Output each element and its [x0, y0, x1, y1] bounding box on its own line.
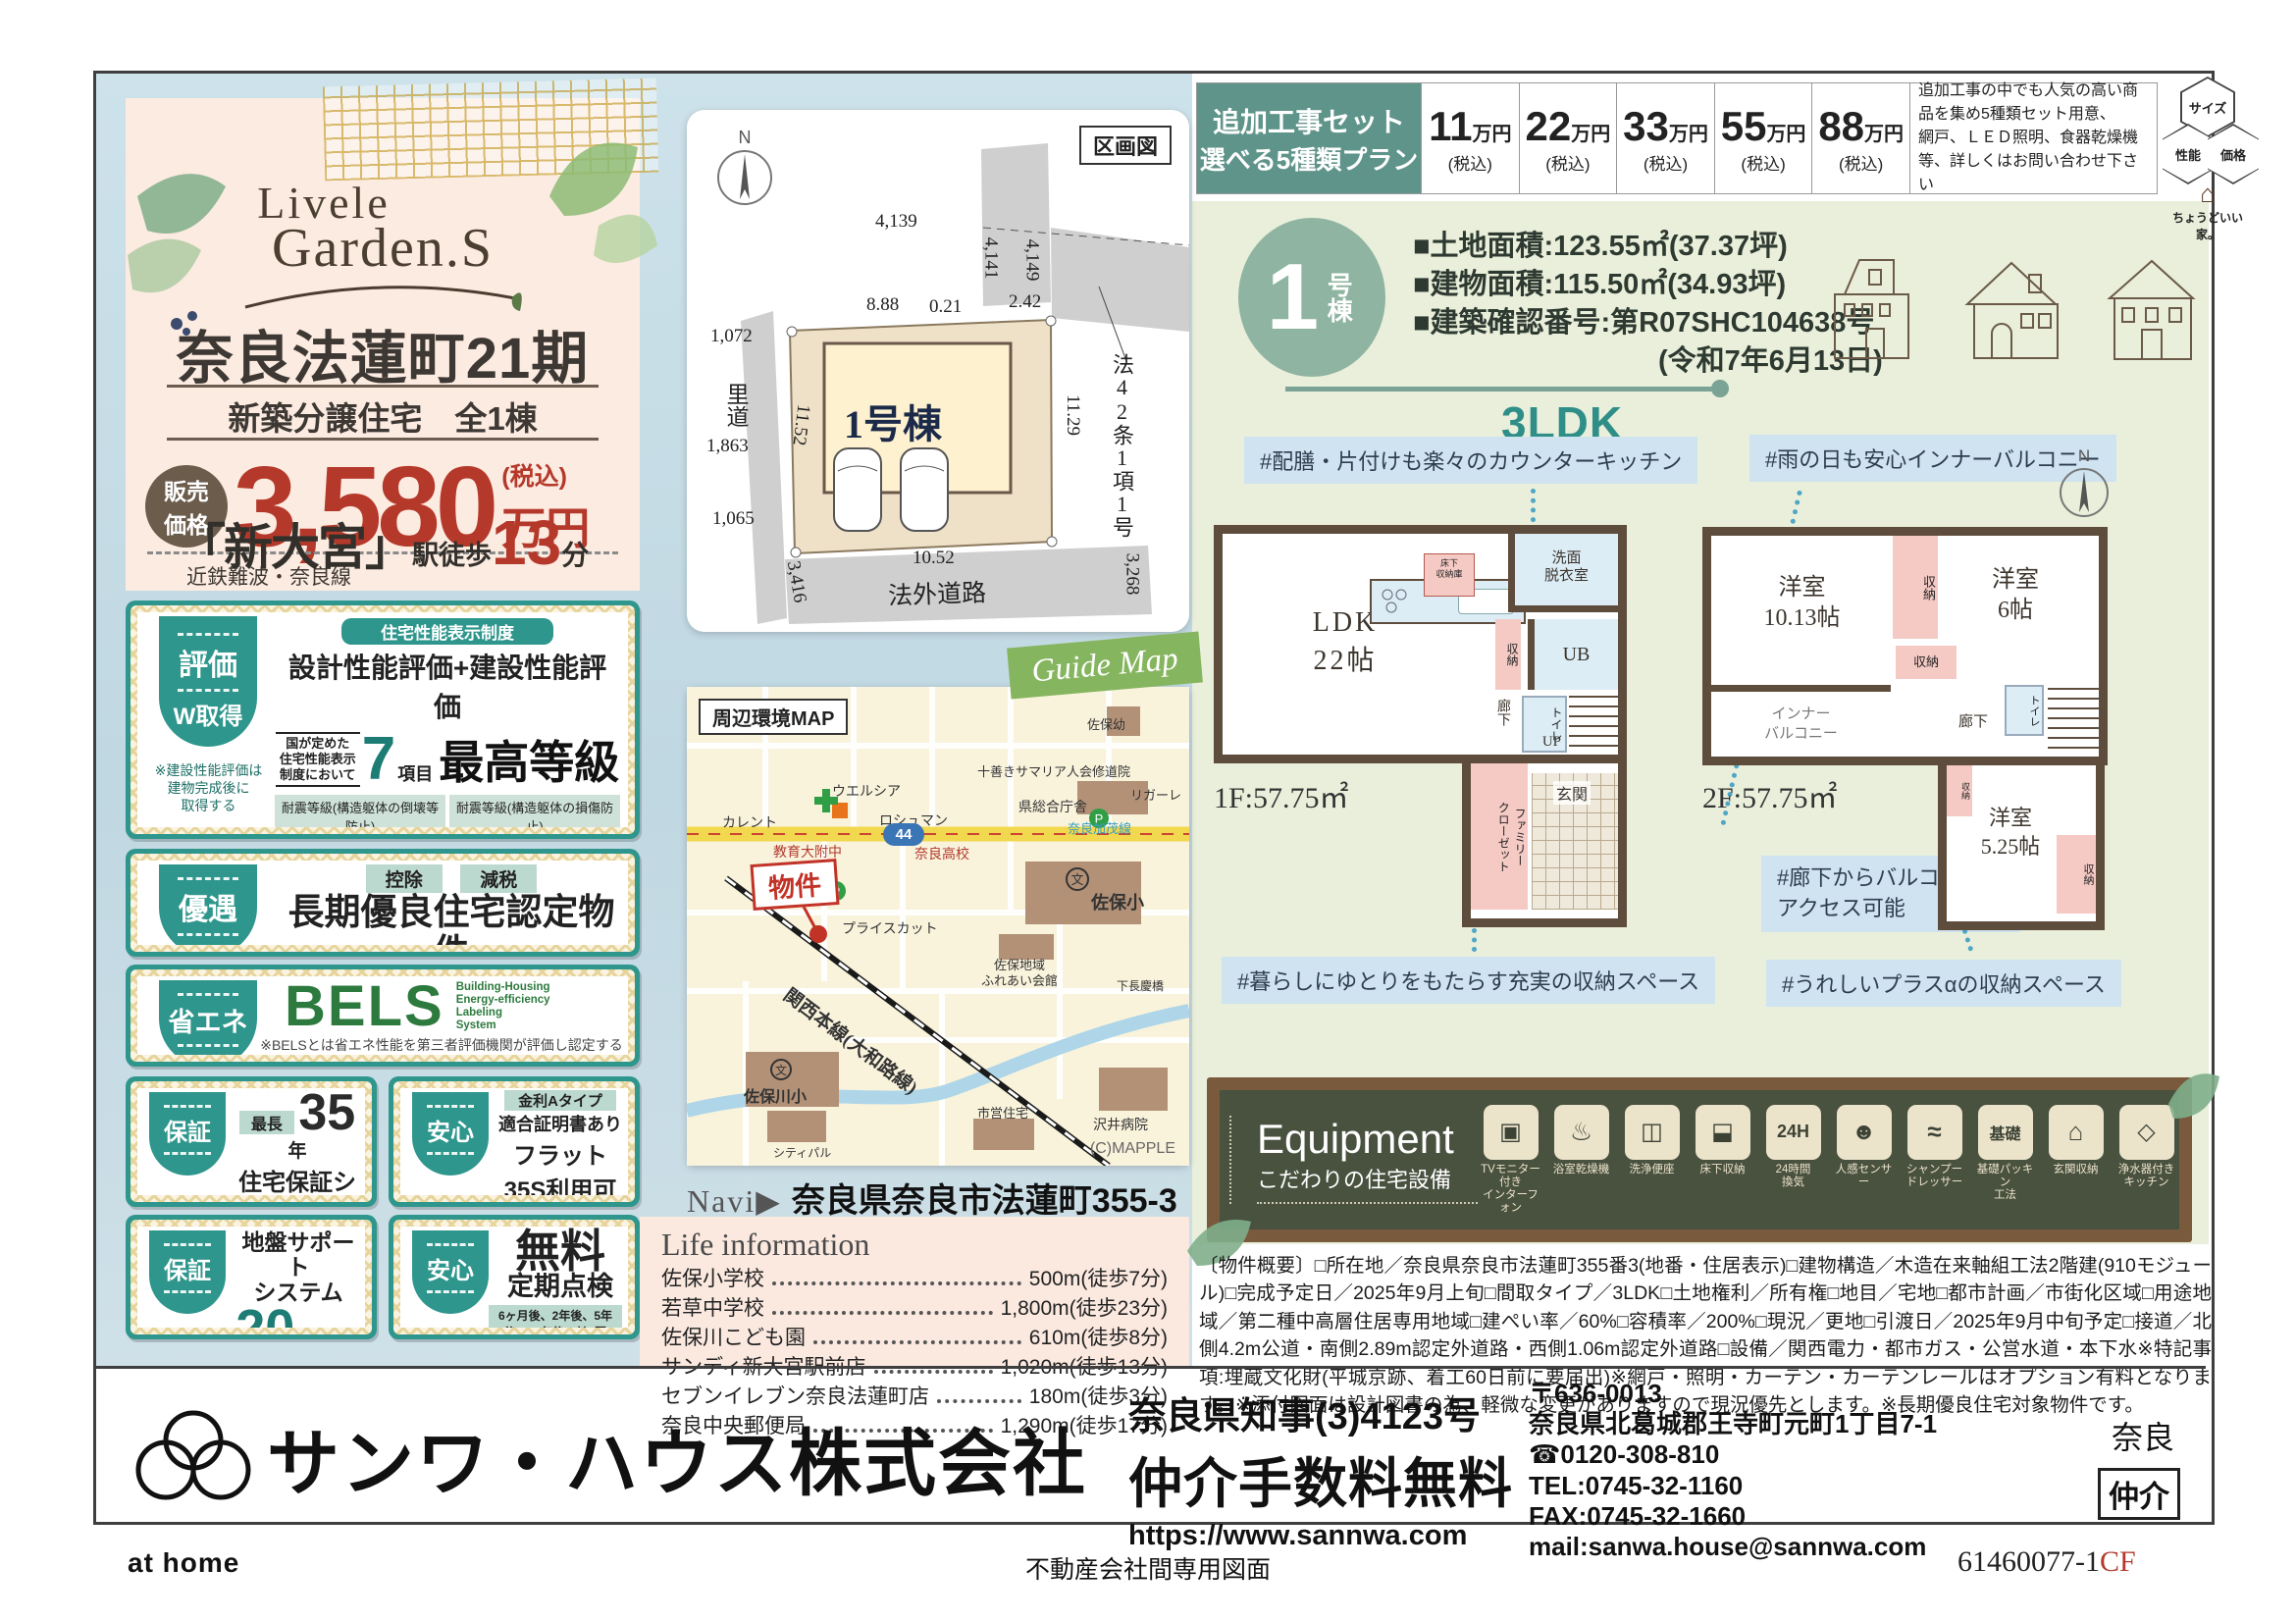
equipment-label: シャンプー ドレッサー	[1902, 1164, 1967, 1189]
walk-label: 駅徒歩	[412, 534, 492, 572]
leaf-decoration-equipment-right	[2159, 1055, 2227, 1133]
badge-jiban-big: 20	[235, 1299, 294, 1328]
extra-work-label-line1: 追加工事セット	[1197, 101, 1421, 140]
dim-1065: 1,065	[712, 508, 755, 530]
badge-hosho35-tab: 保証	[149, 1113, 226, 1147]
divider	[167, 385, 599, 388]
badge-hosho35-chip: 最長	[239, 1111, 294, 1134]
toilet-2f: トイレ	[2005, 685, 2044, 736]
badge-hosho35-unit: 年	[287, 1141, 306, 1162]
inner-balcony: インナー バルコニー	[1711, 685, 1891, 757]
callout-kitchen: #配膳・片付けも楽々のカウンターキッチン	[1244, 437, 1697, 484]
shampoo-dresser-icon: ≈	[1907, 1105, 1962, 1160]
glyph: ♨	[1570, 1117, 1592, 1147]
dim-1129: 11.29	[1062, 394, 1083, 436]
dim-4141: 4,141	[979, 237, 1001, 280]
walk-min-unit: 分	[561, 534, 589, 573]
equipment-label: TVモニター付き インターフォン	[1478, 1164, 1543, 1216]
glyph: 基礎	[1989, 1121, 2020, 1144]
landmark: 佐保川小	[744, 1083, 807, 1107]
equipment-label: 浄水器付き キッチン	[2113, 1164, 2179, 1189]
life-value: 610m(徒歩8分)	[1029, 1322, 1168, 1351]
badge-hyoka-tab: 評価	[159, 641, 257, 684]
plot-unit-label: 1号棟	[844, 392, 942, 449]
guide-map-card: P P 文 文 周辺環境MAP 物件 カレント ウエルシア ロシュマン 教育大附…	[687, 687, 1189, 1166]
life-name: 若草中学校	[661, 1292, 764, 1322]
callout-storage-1f: #暮らしにゆとりをもたらす充実の収納スペース	[1222, 957, 1715, 1004]
price-badge-line1: 販売	[164, 473, 209, 506]
life-row: 若草中学校1,800m(徒歩23分)	[661, 1292, 1168, 1322]
property-subtitle: 新築分譲住宅 全1棟	[137, 392, 628, 440]
corner-point	[1046, 316, 1056, 326]
footer-center-label: 不動産会社間専用図面	[1025, 1550, 1271, 1586]
corridor-2f: 廊下	[1958, 710, 1988, 731]
price-amount: 22	[1526, 103, 1572, 149]
landmark: 沢井病院	[1093, 1115, 1148, 1134]
bath-dryer-icon: ♨	[1554, 1105, 1609, 1160]
property-title: 奈良法蓮町21期	[137, 312, 628, 394]
badge-hosho35-main: 住宅保証システム	[230, 1163, 365, 1195]
equipment-items: ▣ TVモニター付き インターフォン ♨ 浴室乾燥機 ◫ 洗浄便座 ⬓ 床下収納…	[1478, 1105, 2179, 1216]
landmark: リガーレ	[1130, 785, 1181, 804]
price-tax: (税込)	[1545, 150, 1590, 175]
compass-north-label: N	[710, 128, 779, 148]
equipment-item: 24H 24時間 換気	[1760, 1105, 1826, 1216]
extra-work-note: 追加工事の中でも人気の高い商品を集め5種類セット用意、 網戸、ＬＥＤ照明、食器乾…	[1909, 83, 2157, 193]
station-label: 「新大宮」	[177, 508, 412, 579]
company-contact-block: 〒636-0013 奈良県北葛城郡王寺町元町1丁目7-1 ☎0120-308-8…	[1529, 1379, 1937, 1562]
price-cell: 88万円 (税込)	[1811, 83, 1909, 193]
badge-hyoka-head: 住宅性能表示制度	[341, 618, 553, 645]
badge-flat35-sub: 適合証明書あり	[493, 1111, 628, 1136]
badge-hyoka-small: 国が定めた 住宅性能表示 制度において	[276, 732, 360, 788]
storage-1f: 収納	[1495, 619, 1521, 690]
rido-label: 里道	[718, 383, 752, 428]
map-credit: (C)MAPPLE	[1090, 1140, 1175, 1158]
price-tax: (税込)	[1741, 150, 1785, 175]
landmark: 奈良高校	[914, 844, 969, 863]
seven-eleven-icon	[832, 803, 848, 818]
unit-spec-confirmation: ■建築確認番号:第R07SHC104638号	[1413, 304, 1883, 342]
badge-yugu-chip2: 減税	[460, 864, 537, 893]
company-branch: 奈良	[2112, 1413, 2174, 1458]
life-value: 1,800m(徒歩23分)	[1001, 1292, 1168, 1322]
badge-flat35-tab: 安心	[412, 1113, 489, 1147]
company-postal: 〒636-0013	[1529, 1379, 1937, 1409]
badge-yugu-main: 長期優良住宅認定物件	[275, 893, 628, 945]
floorplan-2f-room525: 洋室 5.25帖 収納 収納	[1938, 765, 2105, 930]
company-fee: 仲介手数料無料	[1128, 1439, 1513, 1518]
dim-4139: 4,139	[875, 211, 917, 233]
life-row: 佐保小学校500m(徒歩7分)	[661, 1263, 1168, 1292]
badge-hosho35-big: 35	[298, 1088, 355, 1141]
landmark: シティパル	[773, 1144, 831, 1161]
price-unit: 万円	[1766, 124, 1805, 145]
stairs-2f	[2048, 685, 2099, 757]
school-mark: 文	[775, 1063, 787, 1077]
room-ub: UB	[1528, 619, 1618, 690]
corridor-1f: 廊下	[1492, 699, 1512, 726]
washlet-icon: ◫	[1625, 1105, 1680, 1160]
badge-jiban-tab: 保証	[149, 1251, 226, 1285]
route-name: 奈良加茂線	[1068, 818, 1131, 837]
unit-suffix: 号棟	[1321, 272, 1357, 323]
equipment-label: 浴室乾燥機	[1548, 1164, 1614, 1176]
landmark: 佐保幼	[1087, 714, 1125, 733]
bels-logo: BELS	[285, 978, 444, 1035]
dim-3268: 3,268	[1121, 553, 1142, 596]
equipment-label: 床下収納	[1690, 1164, 1755, 1176]
unit-underline-dot	[1711, 380, 1729, 397]
bels-subtitle: Building-Housing Energy-efficiency Label…	[456, 981, 550, 1033]
price-cell: 11万円 (税込)	[1421, 83, 1519, 193]
walk-minutes: 13	[492, 511, 561, 574]
badge-tenken-tab: 安心	[412, 1251, 489, 1285]
landmark: ウエルシア	[832, 781, 901, 801]
equipment-label: 基礎パッキン 工法	[1972, 1164, 2038, 1203]
badge-shoene-tab: 省エネ	[159, 1001, 257, 1039]
divider	[167, 438, 599, 441]
badge-flat35-main: フラット35S利用可	[493, 1136, 628, 1195]
price-amount: 33	[1623, 103, 1669, 149]
equipment-label: 洗浄便座	[1619, 1164, 1685, 1176]
genkan-area: 玄関	[1532, 773, 1618, 910]
badge-hosho35: 保証 最長 35 年 住宅保証システム ※お引渡しから5年以降、5年ごとに 有償…	[126, 1076, 377, 1207]
life-name: 佐保小学校	[661, 1263, 764, 1292]
badge-flat35: 安心 金利Aタイプ 適合証明書あり フラット35S利用可 ※一連の事務手数料とし…	[389, 1076, 640, 1207]
storage-2f-d: 収納	[1947, 765, 1972, 816]
entrance-storage-icon: ⌂	[2049, 1105, 2104, 1160]
house-illustration	[1815, 250, 1933, 373]
equipment-bar: Equipment こだわりの住宅設備 ▣ TVモニター付き インターフォン ♨…	[1207, 1077, 2192, 1242]
company-fax: FAX:0745-32-1660	[1529, 1501, 1937, 1532]
grade-item: 耐震等級(構造躯体の倒壊等防止)	[275, 795, 445, 827]
landmark: プライスカット	[842, 918, 938, 938]
corner-point	[787, 327, 797, 337]
dim-021: 0.21	[929, 296, 962, 318]
life-title: Life information	[661, 1227, 1168, 1263]
unit-badge: 1 号棟	[1238, 218, 1385, 377]
life-value: 500m(徒歩7分)	[1029, 1263, 1168, 1292]
stairs-up-label: UP	[1542, 734, 1561, 751]
glyph: ▣	[1499, 1118, 1522, 1146]
extra-work-label: 追加工事セット 選べる5種類プラン	[1197, 83, 1421, 193]
price-unit: 万円	[1473, 124, 1512, 145]
glyph: ◫	[1641, 1118, 1663, 1146]
glyph: ≈	[1927, 1117, 1941, 1147]
price-unit: 万円	[1864, 124, 1904, 145]
glyph: 24H	[1777, 1122, 1809, 1142]
landmark: 下長慶橋	[1117, 977, 1164, 994]
badge-hyoka-grade: 最高等級	[439, 727, 619, 792]
family-closet: ファミリー クローゼット	[1471, 763, 1528, 910]
equipment-label: 人感センサー	[1831, 1164, 1897, 1189]
unit-specs: ■土地面積:123.55㎡(37.37坪) ■建物面積:115.50㎡(34.9…	[1413, 228, 1883, 382]
equipment-item: ⬓ 床下収納	[1690, 1105, 1755, 1216]
dim-242: 2.42	[1009, 291, 1041, 313]
price-unit: 万円	[1571, 124, 1610, 145]
landmark: 十善きサマリア人会修道院	[977, 761, 1130, 780]
company-logo	[132, 1401, 255, 1509]
price-unit: 万円	[1669, 124, 1708, 145]
landmark: 佐保地域 ふれあい会館	[981, 958, 1058, 988]
equipment-item: 基礎 基礎パッキン 工法	[1972, 1105, 2038, 1216]
badge-jiban-main: 地盤サポート システム	[232, 1230, 365, 1305]
badge-yugu-chip1: 控除	[366, 864, 443, 893]
motion-sensor-icon: ☻	[1837, 1105, 1892, 1160]
company-mail: mail:sanwa.house@sannwa.com	[1529, 1532, 1937, 1562]
corner-point	[791, 548, 801, 557]
badge-hyoka-seven: 7	[362, 732, 395, 787]
equipment-heading: Equipment こだわりの住宅設備	[1229, 1116, 1478, 1204]
price-amount: 88	[1818, 103, 1864, 149]
glyph: ⬓	[1711, 1118, 1734, 1146]
badge-tenken-sub: 定期点検	[493, 1274, 628, 1300]
area-1f: 1F:57.75㎡	[1214, 773, 1349, 816]
badge-shoene-note: ※BELSとは省エネ性能を第三者評価機関が評価し認定する制度です。	[255, 1035, 628, 1055]
compass: N	[710, 128, 779, 212]
intercom-icon: ▣	[1484, 1105, 1539, 1160]
area-2f: 2F:57.75㎡	[1702, 773, 1838, 816]
navi-address: 奈良県奈良市法蓮町355-3	[792, 1174, 1177, 1222]
hex-caption: ちょうどいい家。	[2163, 209, 2253, 242]
footer-code-number: 61460077-1	[1957, 1545, 2100, 1578]
room-525: 洋室 5.25帖	[1957, 805, 2064, 861]
unit-number: 1	[1267, 250, 1319, 344]
price-cell: 55万円 (税込)	[1714, 83, 1812, 193]
equipment-label: 24時間 換気	[1760, 1164, 1826, 1189]
route-shield: 44	[883, 823, 924, 846]
choudoiihe-logo: サイズ 性能 価格 ⌂ ちょうどいい家。	[2163, 77, 2253, 242]
badge-hyoka-note: ※建設性能評価は 建物完成後に 取得する	[147, 761, 270, 815]
floorplan-1f: LDK 22帖 床下 収納庫 洗面 脱衣室 UB 収納 トイレ 廊下 UP	[1214, 525, 1627, 763]
storage-2f-a: 収納	[1893, 536, 1938, 639]
equipment-item: ▣ TVモニター付き インターフォン	[1478, 1105, 1543, 1216]
equipment-item: ☻ 人感センサー	[1831, 1105, 1897, 1216]
glyph: ⌂	[2068, 1117, 2084, 1147]
price-cell: 33万円 (税込)	[1616, 83, 1714, 193]
storage-2f-c: 収納	[2057, 835, 2096, 914]
dim-1052: 10.52	[913, 548, 955, 569]
company-freedial: ☎0120-308-810	[1529, 1439, 1937, 1470]
hougai-road-label: 法外道路	[887, 573, 986, 611]
badge-hyoka-komoku: 項目	[397, 760, 433, 786]
badge-jiban: 保証 地盤サポート システム 20 年保証	[126, 1215, 377, 1339]
grade-item: 耐震等級(構造躯体の損傷防止)	[449, 795, 620, 827]
neighbor-parcel	[981, 143, 1051, 306]
room-1013: 洋室 10.13帖	[1736, 573, 1868, 634]
extra-work-bar: 追加工事セット 選べる5種類プラン 11万円 (税込) 22万円 (税込) 33…	[1196, 82, 2158, 194]
badge-tenken-note: 6ヶ月後、2年後、5年後、10年後の計4回	[489, 1305, 622, 1328]
company-type-badge: 仲介	[2098, 1468, 2180, 1520]
landmark: 市営住宅	[977, 1103, 1028, 1122]
equipment-item: ⌂ 玄関収納	[2043, 1105, 2109, 1216]
badge-hyoka: 評価 W取得 ※建設性能評価は 建物完成後に 取得する 住宅性能表示制度 設計性…	[126, 601, 640, 839]
unit-spec-land: ■土地面積:123.55㎡(37.37坪)	[1413, 228, 1883, 266]
equipment-item: ≈ シャンプー ドレッサー	[1902, 1105, 1967, 1216]
equipment-subtitle: こだわりの住宅設備	[1257, 1163, 1478, 1204]
kitchen-stove	[1380, 587, 1409, 614]
car	[834, 448, 881, 531]
badge-tenken: 安心 無料 定期点検 6ヶ月後、2年後、5年後、10年後の計4回	[389, 1215, 640, 1339]
extra-work-label-line2: 選べる5種類プラン	[1197, 140, 1421, 177]
corner-point	[1047, 537, 1057, 547]
plan-compass-icon	[2058, 466, 2111, 519]
life-information: Life information 佐保小学校500m(徒歩7分) 若草中学校1,…	[640, 1217, 1189, 1366]
landmark: カレント	[722, 812, 777, 832]
equipment-label: 玄関収納	[2043, 1164, 2109, 1176]
badge-hyoka-main: 設計性能評価+建設性能評価	[275, 647, 620, 725]
footer-code: 61460077-1CF	[1957, 1545, 2136, 1579]
equipment-item: ◫ 洗浄便座	[1619, 1105, 1685, 1216]
landmark: 教育大附中	[773, 842, 842, 862]
floor-storage-icon: ⬓	[1696, 1105, 1750, 1160]
company-url: https://www.sannwa.com	[1128, 1520, 1513, 1552]
school-mark: 文	[1070, 872, 1083, 887]
company-address: 奈良県北葛城郡王寺町元町1丁目7-1	[1529, 1409, 1937, 1439]
marker-dot	[809, 925, 827, 943]
plot-map-card: N 区画図 1号棟 4,139 4,141 4,149 8.88 0.21 2.…	[687, 110, 1189, 632]
glyph: ◇	[2137, 1118, 2155, 1146]
vent-24h-icon: 24H	[1766, 1105, 1821, 1160]
plan-compass-n: N	[2053, 446, 2115, 466]
landmark: 佐保小	[1091, 889, 1144, 915]
company-name: サンワ・ハウス株式会社	[267, 1405, 1087, 1510]
navi-row: Navi▶ 奈良県奈良市法蓮町355-3	[687, 1174, 1177, 1222]
dim-4149: 4,149	[1020, 239, 1042, 282]
company-license: 奈良県知事(3)4123号	[1128, 1385, 1513, 1439]
bukken-marker: 物件	[750, 859, 839, 911]
brand-swoosh	[235, 280, 530, 315]
dim-1863: 1,863	[706, 436, 749, 457]
price-amount: 55	[1721, 103, 1767, 149]
room-senmen: 洗面 脱衣室	[1508, 534, 1618, 612]
equipment-title: Equipment	[1257, 1116, 1478, 1163]
plot-map-title: 区画図	[1079, 126, 1172, 165]
callout-storage-2f: #うれしいプラスαの収納スペース	[1766, 960, 2121, 1007]
badge-tenken-big: 無料	[493, 1228, 628, 1274]
house-icon: ⌂	[2163, 179, 2253, 209]
dim-1072: 1,072	[710, 326, 753, 347]
badge-yugu-tab: 優遇	[159, 885, 257, 928]
plan-compass: N	[2053, 446, 2115, 524]
badge-yugu: 優遇 控除 減税 長期優良住宅認定物件 ※一部の建物は対象外の場合があります。	[126, 849, 640, 957]
price-tax: (税込)	[1644, 150, 1688, 175]
price-tax: (税込)	[1839, 150, 1883, 175]
stairs-1f	[1569, 696, 1618, 755]
life-row: 佐保川こども園610m(徒歩8分)	[661, 1322, 1168, 1351]
floor-storage-box: 床下 収納庫	[1424, 553, 1475, 597]
badge-shoene: 省エネ BELS Building-Housing Energy-efficie…	[126, 965, 640, 1067]
room-6: 洋室 6帖	[1957, 565, 2074, 626]
storage-2f-b: 収納	[1896, 646, 1957, 679]
badge-hyoka-tab2: W取得	[159, 697, 257, 731]
navi-label: Navi▶	[687, 1182, 782, 1220]
unit-spec-building: ■建物面積:115.50㎡(34.93坪)	[1413, 266, 1883, 304]
floorplan-2f: 洋室 10.13帖 収納 洋室 6帖 収納 インナー バルコニー 廊下 DN ト…	[1702, 527, 2108, 765]
car	[901, 448, 948, 531]
company-license-block: 奈良県知事(3)4123号 仲介手数料無料 https://www.sannwa…	[1128, 1385, 1513, 1552]
house-illustration	[2095, 247, 2213, 373]
station-access: 「新大宮」 駅徒歩 13 分	[177, 508, 638, 579]
landmark: 県総合庁舎	[1018, 797, 1087, 816]
guide-map-label: 周辺環境MAP	[699, 699, 848, 735]
price-tax: (税込)	[1448, 150, 1492, 175]
price-tax-note: (税込)	[501, 457, 590, 493]
law-label: 法42条1項1号	[1111, 353, 1132, 538]
glyph: ☻	[1852, 1119, 1876, 1146]
price-cell: 22万円 (税込)	[1519, 83, 1617, 193]
athome-logo: at home	[128, 1547, 239, 1579]
badge-flat35-chip: 金利Aタイプ	[504, 1090, 616, 1111]
unit-underline	[1285, 387, 1717, 392]
company-tel: TEL:0745-32-1160	[1529, 1471, 1937, 1501]
floorplan-1f-entry: ファミリー クローゼット 玄関	[1462, 763, 1627, 927]
life-name: 佐保川こども園	[661, 1322, 806, 1351]
equipment-item: ♨ 浴室乾燥機	[1548, 1105, 1614, 1216]
genkan-label: 玄関	[1553, 781, 1591, 805]
foundation-packing-icon: 基礎	[1978, 1105, 2033, 1160]
company-divider	[96, 1366, 2206, 1369]
price-amount: 11	[1429, 103, 1472, 149]
dim-888: 8.88	[866, 294, 899, 316]
brand-logo: Livele Garden.S	[216, 177, 549, 320]
house-illustration	[1953, 245, 2080, 373]
hex-kakaku-label: 価格	[2208, 126, 2259, 183]
compass-icon	[715, 148, 774, 207]
rido-road	[741, 311, 787, 624]
footer-code-suffix: CF	[2100, 1545, 2136, 1578]
